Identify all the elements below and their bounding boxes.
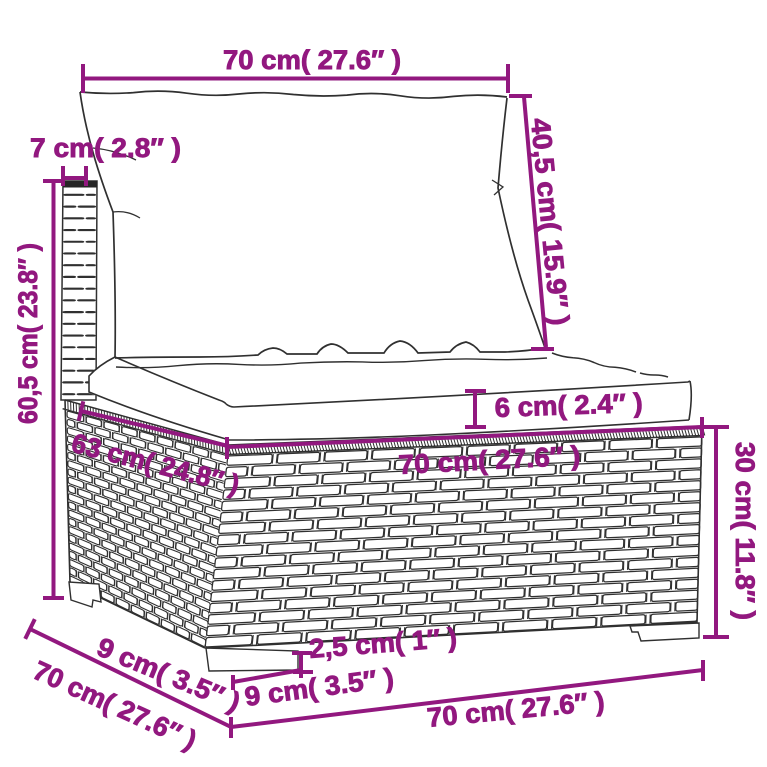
svg-text:6 cm( 2.4″ ): 6 cm( 2.4″ )	[494, 388, 643, 423]
svg-text:7 cm( 2.8″ ): 7 cm( 2.8″ )	[30, 133, 181, 163]
svg-text:30 cm( 11.8″ ): 30 cm( 11.8″ )	[730, 442, 760, 620]
svg-text:60,5 cm( 23.8″ ): 60,5 cm( 23.8″ )	[13, 243, 43, 424]
svg-text:70 cm( 27.6″ ): 70 cm( 27.6″ )	[223, 45, 401, 75]
